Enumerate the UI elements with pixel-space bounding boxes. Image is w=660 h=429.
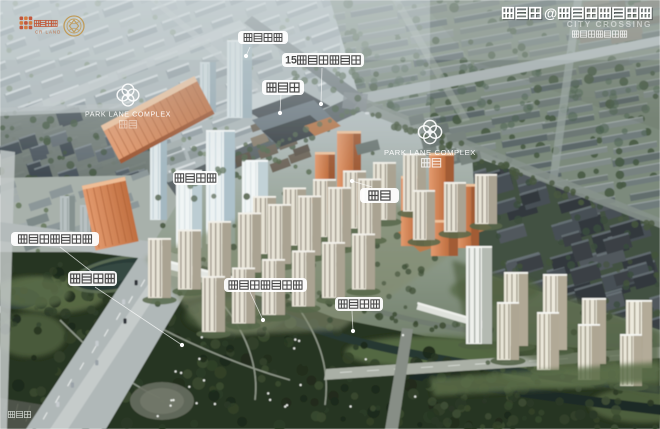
svg-text:PARK LANE COMPLEX: PARK LANE COMPLEX xyxy=(384,148,476,157)
svg-text:CITY CROSSING: CITY CROSSING xyxy=(567,20,652,29)
svg-text:PARK LANE COMPLEX: PARK LANE COMPLEX xyxy=(85,111,171,119)
svg-text:@: @ xyxy=(544,6,557,21)
svg-text:15: 15 xyxy=(285,55,297,67)
svg-text:CR LAND: CR LAND xyxy=(35,30,61,35)
